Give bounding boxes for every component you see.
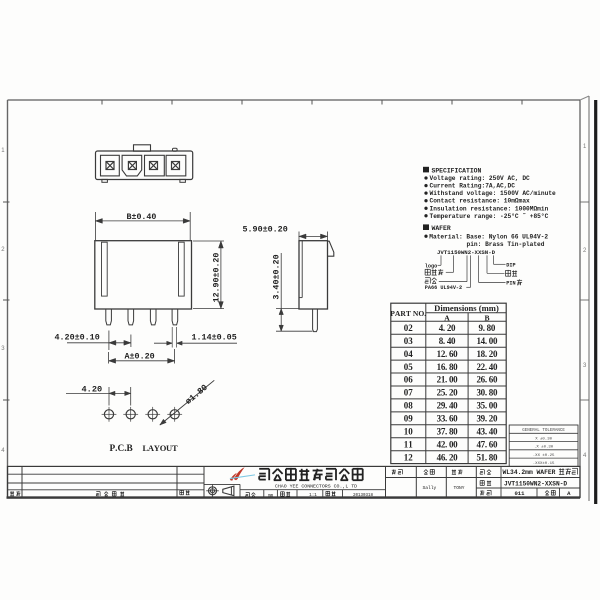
svg-text:29. 40: 29. 40 <box>437 401 459 411</box>
svg-text:JVT1150WN2-XXSN-D: JVT1150WN2-XXSN-D <box>504 481 567 488</box>
svg-text:SPECIFICATION: SPECIFICATION <box>432 167 482 174</box>
svg-text:12.90±0.20: 12.90±0.20 <box>213 253 222 303</box>
svg-text:DIP: DIP <box>506 262 515 268</box>
svg-text:39. 20: 39. 20 <box>476 414 498 424</box>
svg-text:Temperature range: -25°C ˜ +85: Temperature range: -25°C ˜ +85°C <box>430 213 549 220</box>
svg-text:Material: Base: Nylon 66 UL94V: Material: Base: Nylon 66 UL94V-2 <box>429 233 548 240</box>
svg-text:9. 80: 9. 80 <box>479 323 496 333</box>
svg-text:5.90±0.20: 5.90±0.20 <box>243 224 288 234</box>
svg-text:47. 60: 47. 60 <box>476 439 498 449</box>
svg-text:JVT1150WN2-XXSN-D: JVT1150WN2-XXSN-D <box>437 249 496 256</box>
svg-text:05: 05 <box>404 362 414 372</box>
svg-text:P.C.B: P.C.B <box>110 444 133 454</box>
svg-text:1.14±0.05: 1.14±0.05 <box>192 332 237 342</box>
svg-text:Current Rating:7A,AC,DC: Current Rating:7A,AC,DC <box>430 183 516 190</box>
svg-text:03: 03 <box>404 336 414 346</box>
svg-text:42. 00: 42. 00 <box>437 439 459 449</box>
svg-text:8. 40: 8. 40 <box>439 336 456 346</box>
svg-text:11: 11 <box>404 439 414 449</box>
svg-text:Insulation resistance: 1000MΩm: Insulation resistance: 1000MΩmin <box>430 205 549 212</box>
svg-text:43. 40: 43. 40 <box>476 427 498 437</box>
svg-text:25. 20: 25. 20 <box>437 388 459 398</box>
svg-text:46. 20: 46. 20 <box>437 452 459 462</box>
svg-text:22. 40: 22. 40 <box>476 362 498 372</box>
svg-text:14. 00: 14. 00 <box>476 336 498 346</box>
svg-text:Voltage rating: 250V AC, DC: Voltage rating: 250V AC, DC <box>430 175 531 182</box>
svg-text:16. 80: 16. 80 <box>437 362 459 372</box>
svg-text:4.20±0.10: 4.20±0.10 <box>55 332 100 342</box>
svg-text:12. 60: 12. 60 <box>437 349 459 359</box>
svg-text:.X ±0.30: .X ±0.30 <box>534 446 554 450</box>
svg-text:B: B <box>484 313 489 322</box>
svg-text:011: 011 <box>514 490 525 497</box>
svg-text:logo: logo <box>425 263 437 269</box>
svg-text:08: 08 <box>404 401 414 411</box>
svg-text:mm: mm <box>268 493 274 498</box>
svg-text:GENERAL TOLERANCE: GENERAL TOLERANCE <box>522 429 565 433</box>
svg-text:TONY: TONY <box>453 485 464 491</box>
svg-text:09: 09 <box>404 414 414 424</box>
svg-text:06: 06 <box>404 375 414 385</box>
svg-text:Dimensions (mm): Dimensions (mm) <box>434 303 499 313</box>
svg-text:Sally: Sally <box>423 485 437 491</box>
svg-text:X ±0.30: X ±0.30 <box>535 437 552 441</box>
svg-text:A±0.20: A±0.20 <box>125 351 155 361</box>
svg-text:pin: Brass Tin-plated: pin: Brass Tin-plated <box>467 241 545 248</box>
svg-text:12: 12 <box>404 452 414 462</box>
svg-text:LAYOUT: LAYOUT <box>143 443 178 453</box>
svg-text:37. 80: 37. 80 <box>437 427 459 437</box>
svg-text:3.40±0.20: 3.40±0.20 <box>272 254 282 299</box>
svg-text:18. 20: 18. 20 <box>476 349 498 359</box>
svg-text:WAFER: WAFER <box>432 225 451 232</box>
svg-text:.XX ±0.25: .XX ±0.25 <box>533 454 555 458</box>
svg-text:.XXX±0.15: .XXX±0.15 <box>533 462 555 466</box>
svg-text:02: 02 <box>404 323 414 333</box>
svg-text:WL34.2mm WAFER: WL34.2mm WAFER <box>503 469 556 476</box>
svg-text:51. 80: 51. 80 <box>476 452 498 462</box>
svg-text:PA66 UL94V-2: PA66 UL94V-2 <box>425 285 462 291</box>
svg-text:Withstand voltage: 1500V AC/mi: Withstand voltage: 1500V AC/minute <box>430 190 557 197</box>
svg-text:20130318: 20130318 <box>353 494 374 498</box>
svg-text:26. 60: 26. 60 <box>476 375 498 385</box>
svg-text:A: A <box>444 313 450 322</box>
svg-text:PIN: PIN <box>506 280 515 286</box>
svg-text:PART NO.: PART NO. <box>390 309 426 318</box>
svg-text:21. 00: 21. 00 <box>437 375 459 385</box>
svg-text:33. 60: 33. 60 <box>437 414 459 424</box>
svg-text:04: 04 <box>404 349 414 359</box>
svg-text:Contact resistance: 10mΩmax: Contact resistance: 10mΩmax <box>430 198 531 205</box>
svg-text:10: 10 <box>404 427 414 437</box>
svg-text:4. 20: 4. 20 <box>439 323 456 333</box>
svg-text:30. 80: 30. 80 <box>476 388 498 398</box>
svg-text:35. 00: 35. 00 <box>476 401 498 411</box>
svg-text:B±0.40: B±0.40 <box>127 213 157 222</box>
svg-text:4.20: 4.20 <box>82 385 103 395</box>
svg-text:CHAO YEE CONNECTORS CO.,L TD: CHAO YEE CONNECTORS CO.,L TD <box>275 484 357 490</box>
svg-text:07: 07 <box>404 388 414 398</box>
svg-text:1:1: 1:1 <box>309 493 317 498</box>
